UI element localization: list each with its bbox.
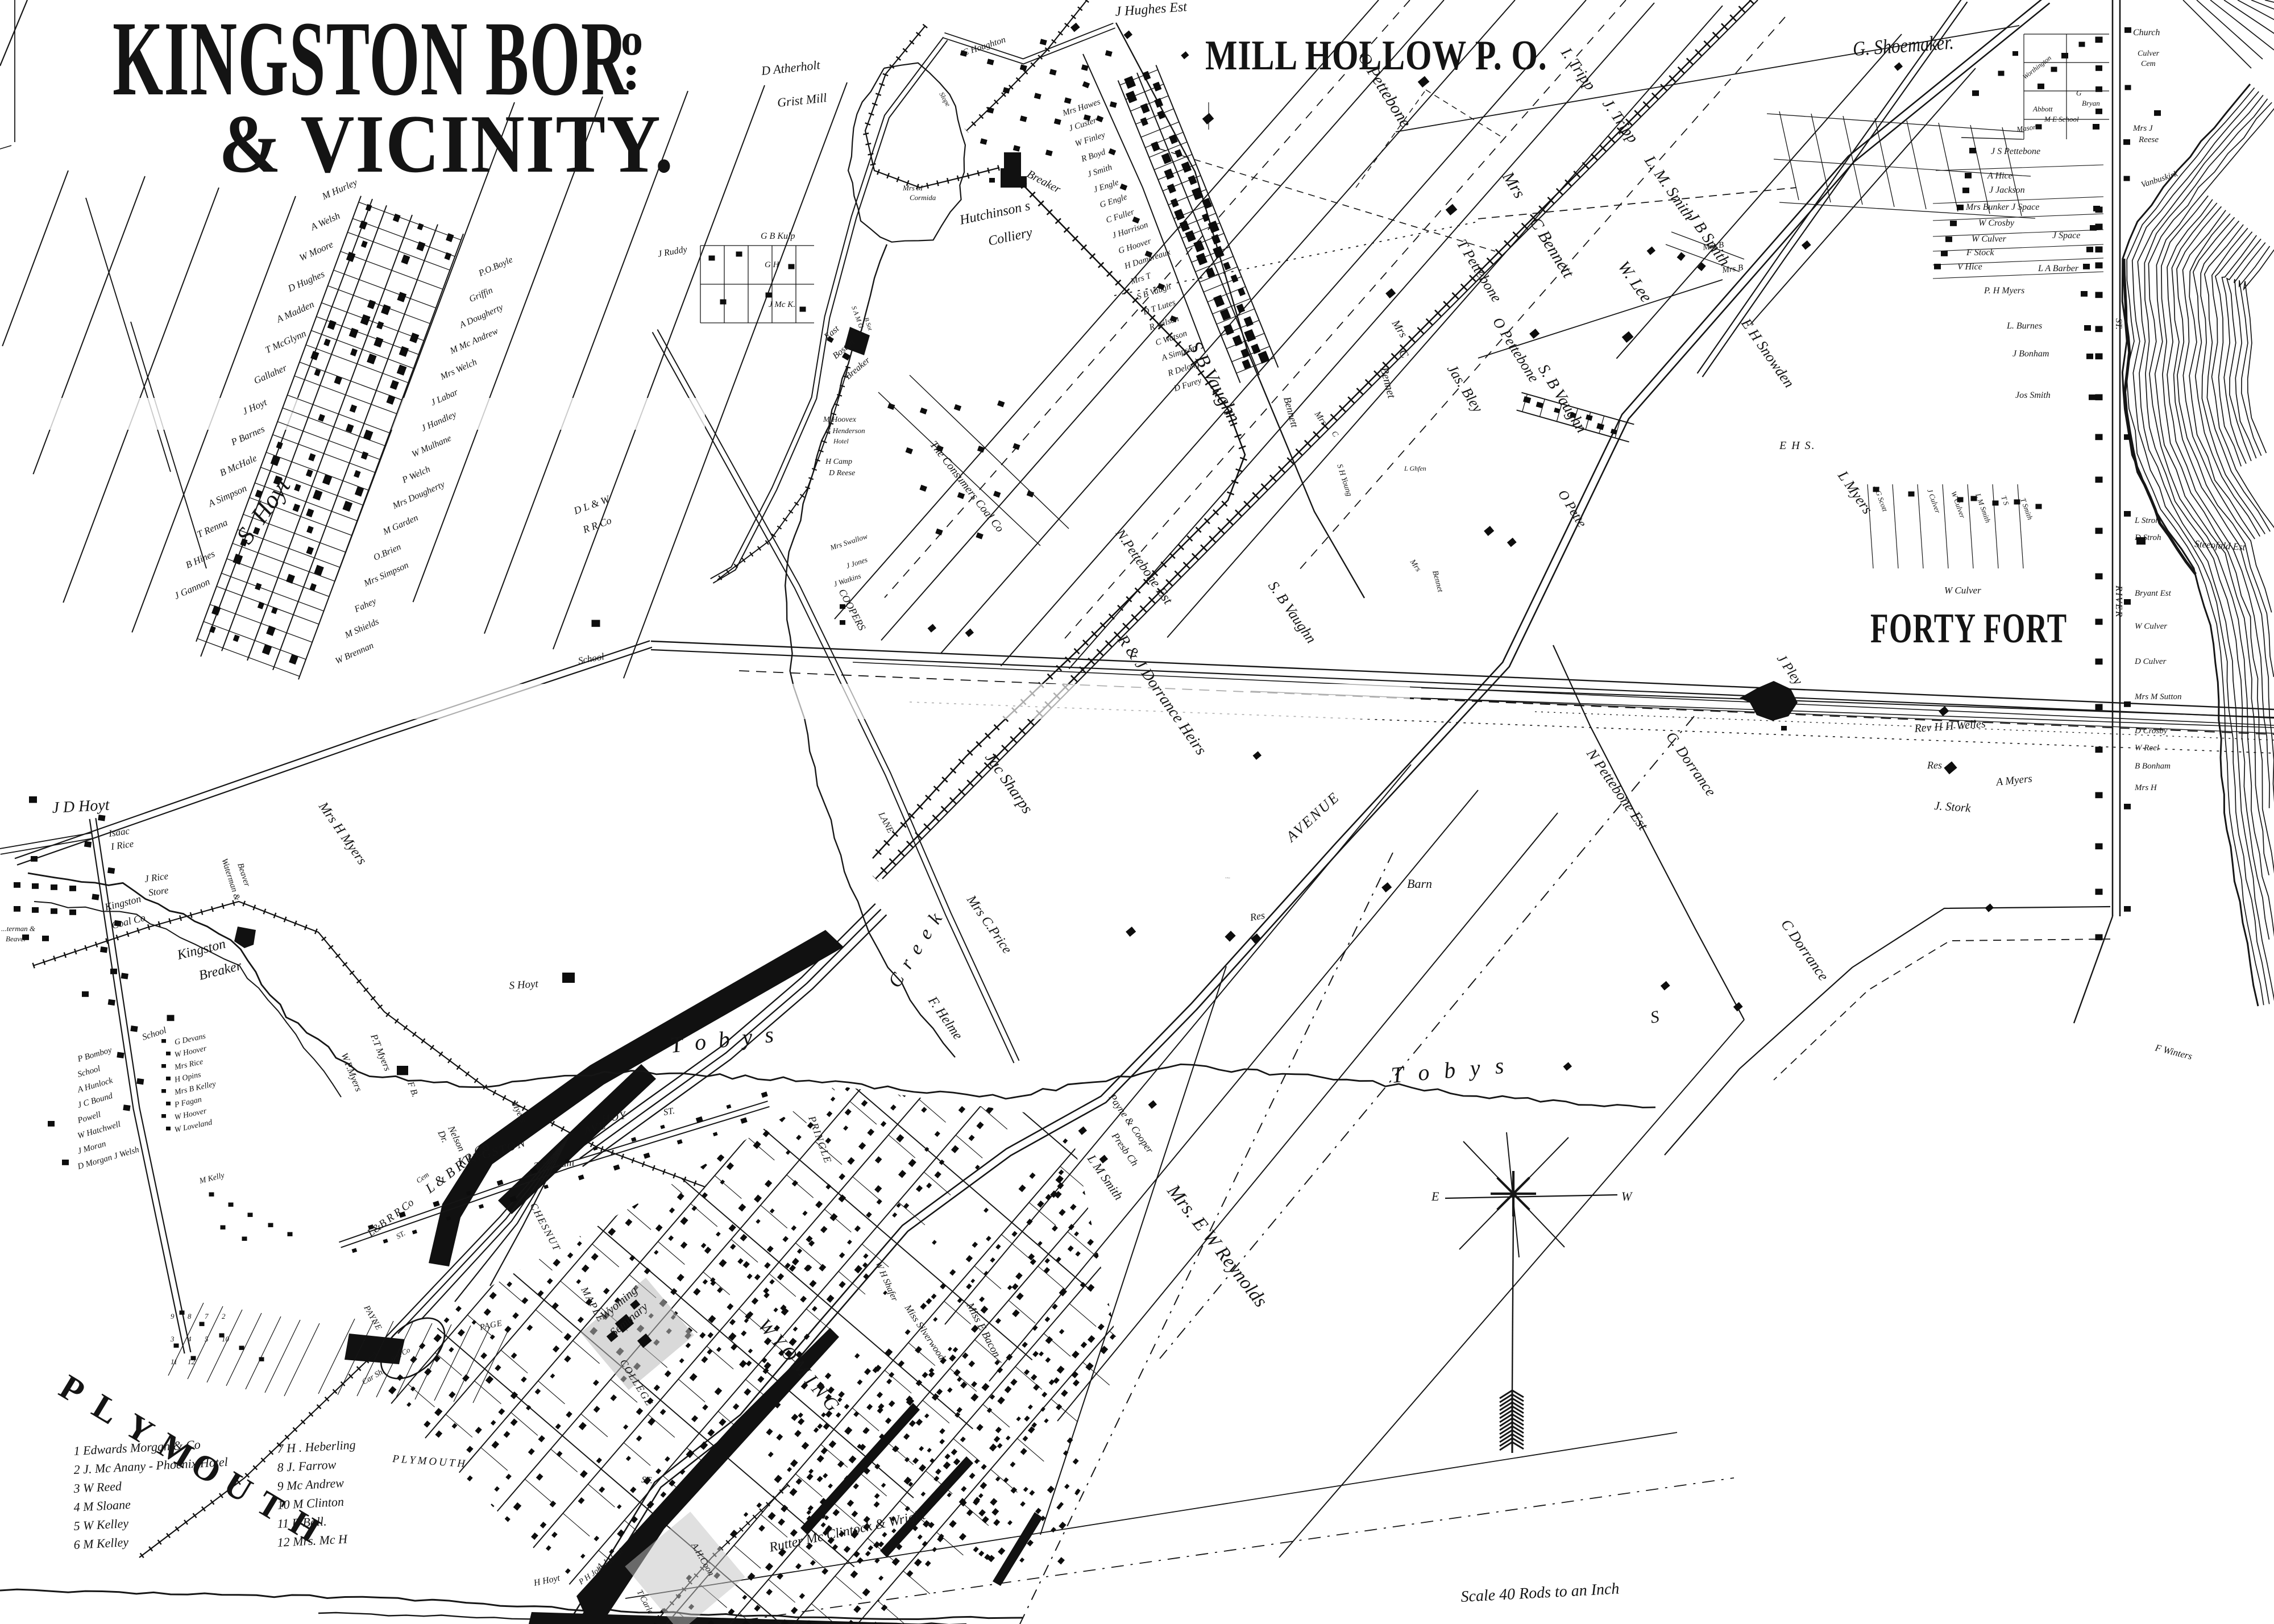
svg-text:D Culver: D Culver bbox=[2134, 657, 2167, 666]
svg-text:Mrs M: Mrs M bbox=[902, 184, 923, 192]
svg-text:P Welch: P Welch bbox=[400, 464, 431, 485]
svg-text:3: 3 bbox=[170, 1335, 175, 1343]
svg-text:I Rice: I Rice bbox=[110, 838, 135, 853]
svg-text:S B Vaugh: S B Vaugh bbox=[1136, 283, 1172, 302]
svg-text:G: G bbox=[2076, 89, 2082, 97]
svg-text:S: S bbox=[1649, 1007, 1661, 1027]
svg-text:Mrs C.Price: Mrs C.Price bbox=[964, 892, 1015, 957]
svg-text:6 M Kelley: 6 M Kelley bbox=[73, 1535, 129, 1552]
svg-text:J Hughes Est: J Hughes Est bbox=[1115, 0, 1188, 19]
svg-text:RIVER: RIVER bbox=[2114, 585, 2124, 618]
svg-text:T McGlynn: T McGlynn bbox=[263, 328, 308, 356]
svg-text:O Pettebone: O Pettebone bbox=[1489, 314, 1542, 385]
svg-text:J Pley: J Pley bbox=[1774, 652, 1806, 688]
svg-text:4 M Sloane: 4 M Sloane bbox=[73, 1497, 131, 1514]
svg-text:Mrs Bunker J Space: Mrs Bunker J Space bbox=[1965, 202, 2039, 212]
svg-text:Jos Smith: Jos Smith bbox=[2015, 391, 2051, 400]
svg-text:D Crosby: D Crosby bbox=[2134, 726, 2168, 736]
svg-text:J D Hoyt: J D Hoyt bbox=[52, 796, 111, 817]
svg-text:Jac Sharps: Jac Sharps bbox=[981, 749, 1036, 817]
svg-text:C r e e k: C r e e k bbox=[884, 907, 947, 991]
svg-text:Barn: Barn bbox=[1407, 877, 1432, 891]
svg-text:Kingston: Kingston bbox=[175, 937, 227, 963]
svg-text:Breaker: Breaker bbox=[197, 958, 243, 983]
svg-text:Grist Mill: Grist Mill bbox=[777, 90, 828, 110]
svg-text:Church: Church bbox=[2133, 28, 2160, 38]
svg-text:Kingston: Kingston bbox=[103, 893, 142, 913]
svg-text:LANE: LANE bbox=[876, 810, 895, 835]
svg-text:L A Barber: L A Barber bbox=[2038, 264, 2079, 273]
svg-text:8 J. Farrow: 8 J. Farrow bbox=[277, 1457, 337, 1475]
svg-text:T Smith: T Smith bbox=[2019, 497, 2035, 521]
svg-text:G B Kulp: G B Kulp bbox=[761, 231, 795, 241]
svg-text:E: E bbox=[1431, 1189, 1439, 1203]
svg-text:F Winters: F Winters bbox=[2153, 1042, 2194, 1062]
svg-text:ST.: ST. bbox=[395, 1229, 406, 1241]
svg-text:Res: Res bbox=[1248, 909, 1265, 923]
svg-text:J Custer: J Custer bbox=[1068, 116, 1098, 134]
svg-text:I. Tripp: I. Tripp bbox=[1557, 44, 1599, 93]
svg-text:P.O.Boyle: P.O.Boyle bbox=[477, 255, 514, 279]
svg-text:CHESNUT: CHESNUT bbox=[528, 1201, 563, 1253]
svg-text:G Engle: G Engle bbox=[1099, 193, 1128, 210]
svg-text:E H S.: E H S. bbox=[1779, 439, 1816, 452]
svg-text:B Bonham: B Bonham bbox=[2135, 762, 2171, 771]
svg-text:2: 2 bbox=[222, 1312, 226, 1320]
svg-text:Abbott: Abbott bbox=[2032, 105, 2053, 113]
svg-text:M Hoovex: M Hoovex bbox=[823, 416, 857, 424]
svg-text:Bennet: Bennet bbox=[1430, 570, 1445, 593]
svg-text:PLYMOUTH: PLYMOUTH bbox=[392, 1453, 468, 1470]
svg-text:T S: T S bbox=[1999, 495, 2011, 506]
svg-text:...terman &: ...terman & bbox=[1, 924, 36, 933]
svg-text:W Reel: W Reel bbox=[2135, 744, 2159, 753]
svg-text:Griffin: Griffin bbox=[468, 285, 495, 304]
svg-text:Mrs. E W Reynolds: Mrs. E W Reynolds bbox=[1163, 1180, 1271, 1311]
svg-text:Car Sh.: Car Sh. bbox=[361, 1367, 387, 1386]
svg-text:Myers: Myers bbox=[509, 1099, 528, 1124]
svg-text:H Opins: H Opins bbox=[173, 1070, 202, 1085]
svg-text:5 W Kelley: 5 W Kelley bbox=[73, 1516, 129, 1533]
svg-text:M Mc Andrew: M Mc Andrew bbox=[448, 326, 500, 356]
svg-text:4: 4 bbox=[188, 1335, 192, 1343]
svg-text:ST.: ST. bbox=[641, 1475, 653, 1485]
svg-text:Colliery: Colliery bbox=[987, 225, 1034, 249]
svg-text:S. B Vaughn: S. B Vaughn bbox=[1265, 578, 1319, 646]
svg-text:L M Smith: L M Smith bbox=[1974, 492, 1993, 524]
svg-text:MILL HOLLOW P. O.: MILL HOLLOW P. O. bbox=[1205, 32, 1547, 78]
svg-text:9: 9 bbox=[171, 1312, 175, 1320]
svg-text:W H Shafer: W H Shafer bbox=[873, 1260, 899, 1303]
svg-text:M E School: M E School bbox=[2044, 115, 2079, 123]
svg-text:B Hines: B Hines bbox=[184, 548, 217, 571]
svg-text:Mrs Dougherty: Mrs Dougherty bbox=[391, 479, 446, 511]
svg-text:C Houghton: C Houghton bbox=[961, 35, 1007, 57]
svg-text:Hotel: Hotel bbox=[833, 437, 849, 445]
svg-text:H Hoyt: H Hoyt bbox=[532, 1573, 561, 1588]
svg-text:AVENUE: AVENUE bbox=[1282, 788, 1343, 846]
svg-text:T Renna: T Renna bbox=[195, 517, 229, 539]
svg-text:M Garden: M Garden bbox=[381, 513, 420, 537]
svg-text:W: W bbox=[1621, 1189, 1633, 1203]
svg-text:J Smith: J Smith bbox=[1086, 163, 1113, 179]
svg-text:D Reese: D Reese bbox=[828, 469, 855, 477]
svg-text:L Stroh: L Stroh bbox=[2134, 516, 2160, 525]
svg-text:Mrs Welch: Mrs Welch bbox=[438, 357, 478, 382]
svg-text:Mrs T: Mrs T bbox=[1129, 271, 1153, 286]
svg-text:W Brennan: W Brennan bbox=[334, 641, 375, 666]
svg-text:J Moran: J Moran bbox=[77, 1139, 107, 1156]
svg-text:ST.: ST. bbox=[663, 1106, 675, 1118]
svg-text:W Culver: W Culver bbox=[1972, 234, 2007, 244]
svg-text:W Finley: W Finley bbox=[1074, 130, 1106, 148]
svg-text:J Ruddy: J Ruddy bbox=[657, 244, 688, 259]
svg-text:Mrs: Mrs bbox=[1389, 317, 1409, 340]
svg-text:P. H Myers: P. H Myers bbox=[1983, 286, 2024, 296]
svg-text:M Shields: M Shields bbox=[343, 617, 380, 641]
svg-text:Store: Store bbox=[148, 884, 169, 898]
svg-text:PAGE: PAGE bbox=[479, 1319, 504, 1332]
svg-text:L. Burnes: L. Burnes bbox=[2006, 321, 2042, 331]
svg-text:H Camp: H Camp bbox=[825, 458, 852, 466]
svg-text:Worthington: Worthington bbox=[2021, 54, 2053, 81]
svg-text:J Harrison: J Harrison bbox=[1111, 221, 1149, 240]
svg-text:Jas. Bley: Jas. Bley bbox=[1444, 362, 1487, 416]
svg-text:G H: G H bbox=[765, 260, 780, 269]
svg-text:Fahey: Fahey bbox=[352, 596, 378, 615]
svg-text:D L & W: D L & W bbox=[572, 493, 612, 517]
svg-text:12: 12 bbox=[188, 1357, 196, 1366]
svg-text:C Dorrance: C Dorrance bbox=[1778, 916, 1832, 984]
svg-text:Culver: Culver bbox=[2138, 49, 2160, 58]
svg-text:D Atherholt: D Atherholt bbox=[760, 57, 821, 78]
svg-text:C: C bbox=[1330, 430, 1340, 439]
svg-text:J Mc K.: J Mc K. bbox=[769, 300, 795, 309]
svg-text:J Space: J Space bbox=[2052, 231, 2080, 240]
svg-text:D Hughes: D Hughes bbox=[286, 268, 327, 294]
svg-text:J Engle: J Engle bbox=[1093, 178, 1120, 194]
svg-text:Mrs Simpson: Mrs Simpson bbox=[362, 560, 410, 589]
svg-text:L. M. Smith: L. M. Smith bbox=[1641, 152, 1698, 223]
svg-text:3 W Reed: 3 W Reed bbox=[73, 1479, 122, 1496]
svg-text:& VICINITY.: & VICINITY. bbox=[219, 98, 674, 190]
svg-text:Reese: Reese bbox=[2138, 135, 2159, 144]
svg-text:J Jones: J Jones bbox=[845, 555, 868, 570]
svg-text:R Boyd: R Boyd bbox=[1080, 148, 1107, 164]
svg-text:Mrs Swallow: Mrs Swallow bbox=[828, 531, 869, 552]
svg-text:J G Scott: J G Scott bbox=[1872, 484, 1890, 513]
svg-text:W Hoover: W Hoover bbox=[174, 1044, 208, 1060]
svg-text:W. Lee: W. Lee bbox=[1614, 257, 1655, 306]
svg-text:Bryan: Bryan bbox=[2082, 99, 2100, 107]
svg-text:J. Stork: J. Stork bbox=[1934, 799, 1972, 815]
svg-text:C Fuller: C Fuller bbox=[1105, 207, 1135, 225]
svg-text:J Culver: J Culver bbox=[1926, 488, 1943, 515]
svg-text:9 Mc Andrew: 9 Mc Andrew bbox=[277, 1476, 345, 1493]
svg-text:10: 10 bbox=[222, 1335, 230, 1343]
svg-text:o: o bbox=[621, 15, 643, 64]
svg-text:S H Young: S H Young bbox=[1335, 463, 1353, 497]
svg-text:Mrs H Myers: Mrs H Myers bbox=[316, 799, 370, 868]
svg-text:W Mulhane: W Mulhane bbox=[410, 433, 453, 459]
svg-text:Gallaher: Gallaher bbox=[252, 362, 288, 386]
svg-text:L Ghfen: L Ghfen bbox=[1404, 464, 1426, 472]
svg-text:Beaver: Beaver bbox=[235, 862, 251, 887]
svg-text:P.T Myers: P.T Myers bbox=[368, 1032, 393, 1073]
svg-text:Mrs J: Mrs J bbox=[2132, 124, 2153, 133]
svg-text:11: 11 bbox=[171, 1357, 177, 1366]
svg-text:S A M G: S A M G bbox=[850, 305, 865, 329]
svg-text:C Bennett: C Bennett bbox=[1526, 214, 1578, 281]
svg-text:S Hoyt: S Hoyt bbox=[509, 978, 539, 992]
svg-text:E H Snowden: E H Snowden bbox=[1738, 315, 1798, 391]
svg-text:ST.: ST. bbox=[2114, 318, 2123, 330]
svg-text:PAYNE: PAYNE bbox=[362, 1303, 383, 1332]
svg-text:Cormida: Cormida bbox=[910, 193, 936, 202]
svg-text:Coal Co: Coal Co bbox=[110, 912, 147, 931]
svg-text:J Bonham: J Bonham bbox=[2012, 349, 2049, 359]
svg-text:Bryant Est: Bryant Est bbox=[2135, 589, 2172, 598]
svg-text:W Moore: W Moore bbox=[297, 239, 335, 263]
svg-text:A Madden: A Madden bbox=[275, 299, 316, 325]
svg-text:Steeofald Est: Steeofald Est bbox=[2194, 538, 2247, 553]
svg-text:P: P bbox=[53, 1368, 91, 1412]
svg-text:J C Bound: J C Bound bbox=[77, 1091, 114, 1110]
svg-text:MAPLE: MAPLE bbox=[579, 1285, 607, 1324]
svg-text:J Rice: J Rice bbox=[144, 870, 169, 884]
svg-text:A Dougherty: A Dougherty bbox=[458, 302, 505, 331]
svg-text:Vanbuskirk: Vanbuskirk bbox=[2140, 169, 2179, 190]
svg-text:G Henderson: G Henderson bbox=[825, 426, 865, 435]
svg-text:F. Helme: F. Helme bbox=[925, 994, 966, 1043]
svg-text:D T Lutes: D T Lutes bbox=[1142, 298, 1177, 317]
svg-text:J Watkins: J Watkins bbox=[832, 571, 862, 588]
svg-text:C. Dorrance: C. Dorrance bbox=[1663, 729, 1719, 799]
svg-text:A Simpson: A Simpson bbox=[206, 483, 248, 509]
svg-text:P Fagan: P Fagan bbox=[173, 1095, 202, 1110]
svg-text:N Pettebone Est: N Pettebone Est bbox=[1583, 745, 1652, 833]
svg-text:Res: Res bbox=[1927, 759, 1942, 771]
svg-text:Scale 40 Rods to an Inch: Scale 40 Rods to an Inch bbox=[1460, 1580, 1620, 1606]
svg-text:D Furey: D Furey bbox=[1172, 376, 1203, 394]
svg-text:C Watson: C Watson bbox=[1155, 329, 1189, 348]
svg-text:Beaver: Beaver bbox=[6, 934, 27, 943]
svg-text:W Culver: W Culver bbox=[2135, 622, 2167, 631]
svg-text:G. Shoemaker.: G. Shoemaker. bbox=[1852, 31, 1955, 60]
svg-text:7 H . Heberling: 7 H . Heberling bbox=[277, 1438, 356, 1456]
svg-text:J S Pettebone: J S Pettebone bbox=[1991, 147, 2040, 156]
svg-text:P Bomboy: P Bomboy bbox=[76, 1045, 113, 1064]
svg-text:W Culver: W Culver bbox=[1944, 585, 1981, 596]
svg-text:T Pettebone: T Pettebone bbox=[1454, 236, 1505, 305]
svg-text:Jer Sharps: Jer Sharps bbox=[1225, 878, 1230, 879]
svg-text:School: School bbox=[77, 1064, 102, 1079]
svg-text:W Crosby: W Crosby bbox=[1978, 218, 2015, 228]
svg-text:L Myers: L Myers bbox=[1835, 467, 1876, 517]
svg-text:F B.: F B. bbox=[405, 1080, 420, 1099]
svg-text:Slope: Slope bbox=[937, 91, 952, 109]
svg-text:Mrs H: Mrs H bbox=[2134, 783, 2157, 792]
svg-text:W Culver: W Culver bbox=[1949, 490, 1967, 520]
svg-text:8: 8 bbox=[188, 1312, 192, 1320]
svg-text:FORTY FORT: FORTY FORT bbox=[1870, 605, 2068, 651]
svg-text:B McHale: B McHale bbox=[218, 452, 259, 479]
svg-text:5: 5 bbox=[205, 1335, 209, 1343]
svg-text:J Gannon: J Gannon bbox=[172, 576, 211, 601]
svg-text:The Consumers Coal Co: The Consumers Coal Co bbox=[927, 439, 1006, 535]
svg-text:M Kelly: M Kelly bbox=[198, 1171, 226, 1186]
svg-text:A Myers: A Myers bbox=[1994, 772, 2032, 788]
svg-text:Mrs: Mrs bbox=[1499, 168, 1529, 201]
svg-text:Isaac: Isaac bbox=[107, 825, 131, 839]
svg-text:Cem: Cem bbox=[2141, 60, 2156, 68]
svg-text:O.Brien: O.Brien bbox=[372, 542, 403, 563]
svg-text:COOPERS: COOPERS bbox=[836, 587, 868, 632]
svg-text:Mrs M Sutton: Mrs M Sutton bbox=[2134, 692, 2182, 701]
svg-text:Mrs: Mrs bbox=[1408, 558, 1422, 574]
svg-text:U: U bbox=[217, 1464, 259, 1510]
svg-text:L: L bbox=[86, 1387, 126, 1432]
svg-text:7: 7 bbox=[205, 1312, 209, 1320]
svg-text:Hutchinson s: Hutchinson s bbox=[958, 198, 1032, 228]
svg-text:J Jackson: J Jackson bbox=[1989, 185, 2025, 195]
svg-text:A Hice: A Hice bbox=[1987, 171, 2012, 181]
svg-text:T o b y s: T o b y s bbox=[1390, 1052, 1509, 1088]
svg-text:Mrs Rice: Mrs Rice bbox=[173, 1058, 204, 1072]
svg-text:A Welsh: A Welsh bbox=[309, 210, 342, 233]
svg-text:Powell: Powell bbox=[76, 1110, 102, 1125]
